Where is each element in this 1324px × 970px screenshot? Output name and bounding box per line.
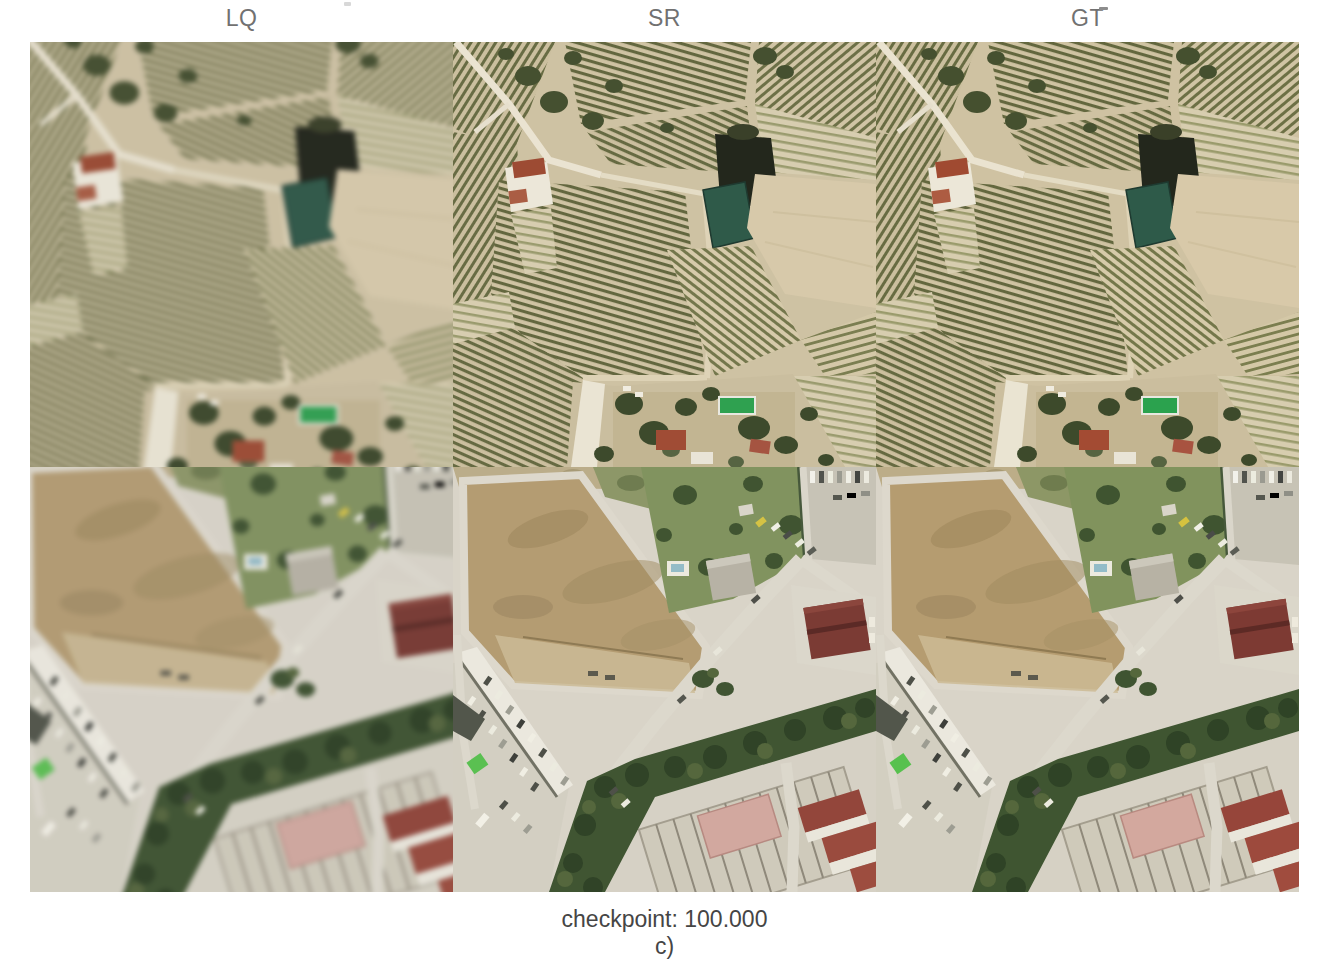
tile-row2-sr [453, 467, 876, 892]
aerial-image-vineyards-sr [453, 42, 876, 467]
tile-row1-lq [30, 42, 453, 467]
caption-checkpoint: checkpoint: 100.000 [30, 906, 1299, 933]
tile-row1-gt [876, 42, 1299, 467]
figure-page: LQ SR GT [0, 0, 1324, 970]
stray-mark-left [344, 2, 351, 6]
aerial-image-urban-lq [30, 467, 453, 892]
column-label-sr: SR [453, 5, 876, 32]
aerial-image-urban-sr [453, 467, 876, 892]
stray-mark-right [1099, 7, 1108, 10]
column-label-gt: GT [876, 5, 1299, 32]
column-label-lq: LQ [30, 5, 453, 32]
caption-subfigure-label: c) [30, 933, 1299, 960]
comparison-grid [30, 42, 1299, 892]
figure-caption: checkpoint: 100.000 c) [30, 906, 1299, 960]
aerial-image-vineyards-lq [30, 42, 453, 467]
tile-row2-lq [30, 467, 453, 892]
aerial-image-urban-gt [876, 467, 1299, 892]
aerial-image-vineyards-gt [876, 42, 1299, 467]
tile-row2-gt [876, 467, 1299, 892]
tile-row1-sr [453, 42, 876, 467]
